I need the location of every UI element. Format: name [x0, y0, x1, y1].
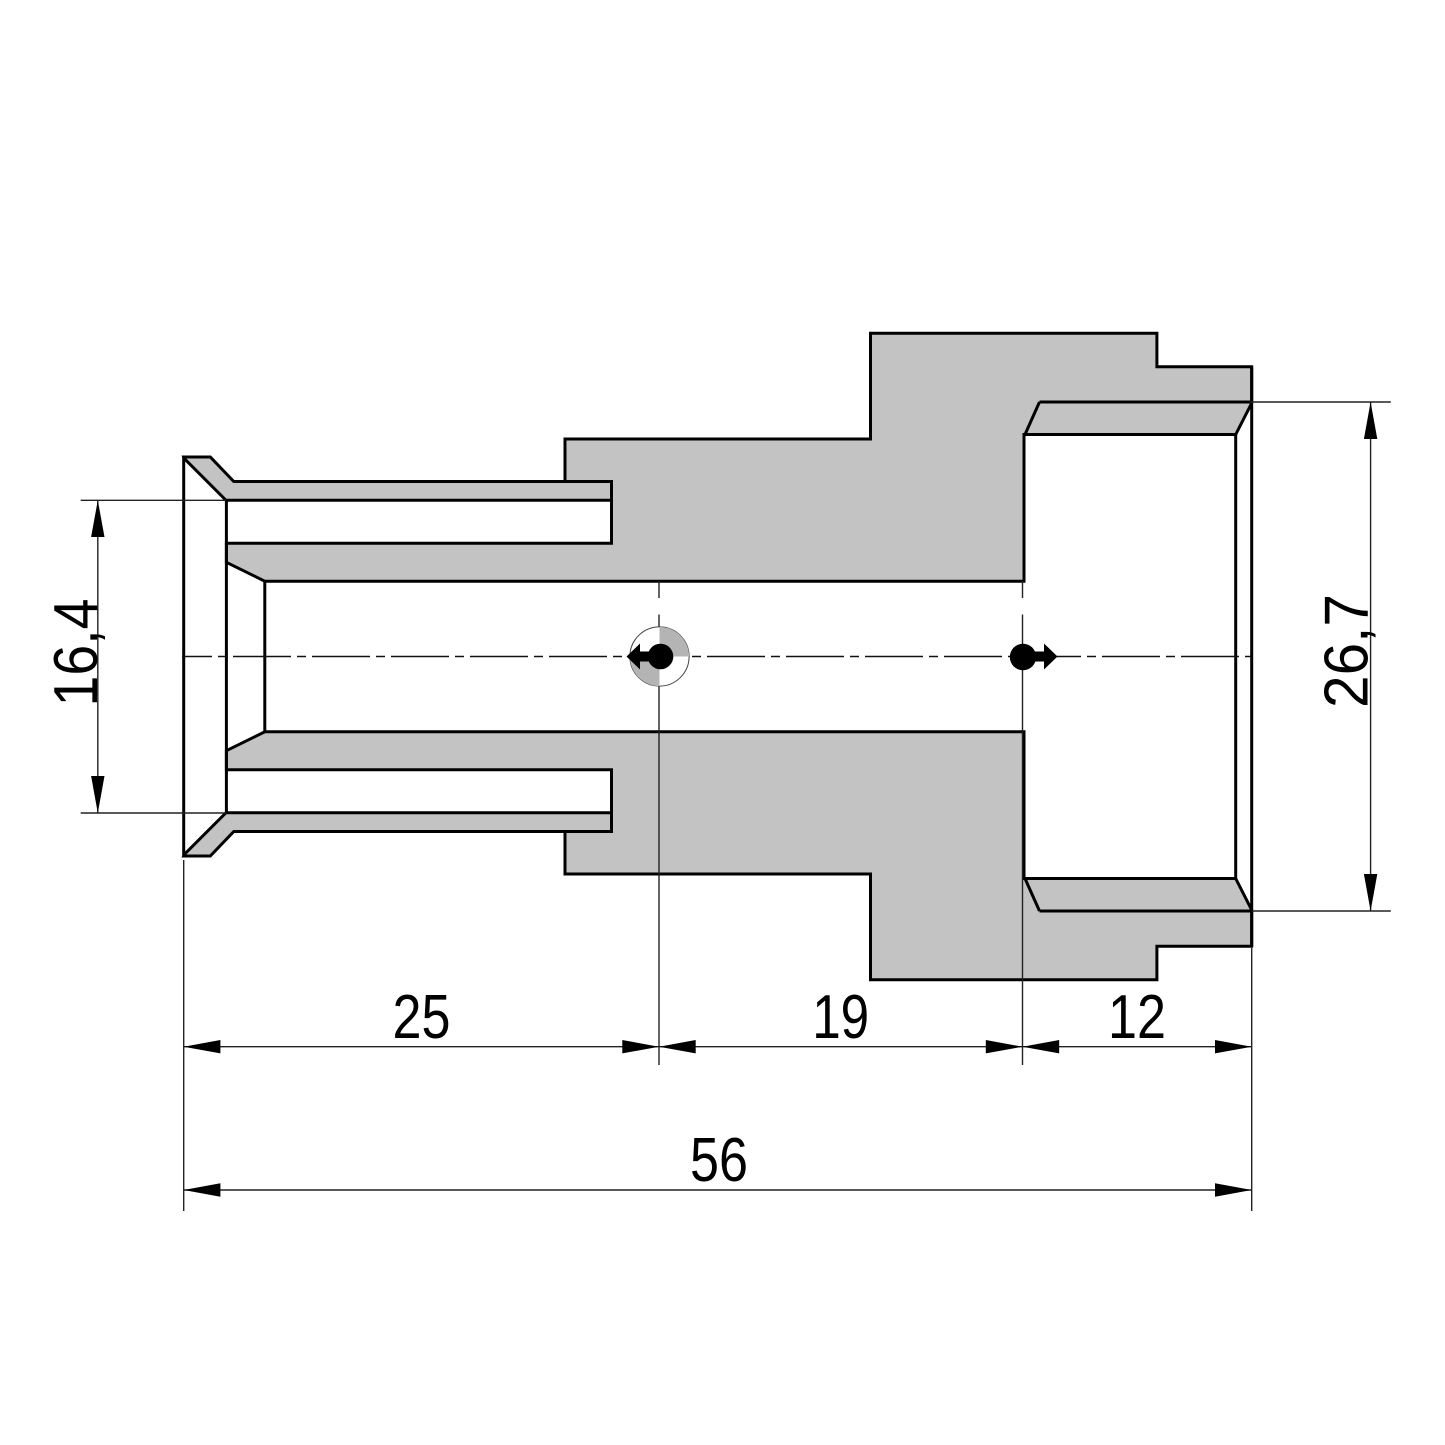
svg-text:19: 19	[812, 983, 869, 1052]
svg-text:56: 56	[690, 1126, 748, 1195]
svg-text:26,7: 26,7	[1313, 594, 1382, 708]
svg-text:25: 25	[393, 983, 451, 1052]
svg-text:12: 12	[1108, 983, 1166, 1052]
svg-text:16,4: 16,4	[42, 599, 111, 707]
